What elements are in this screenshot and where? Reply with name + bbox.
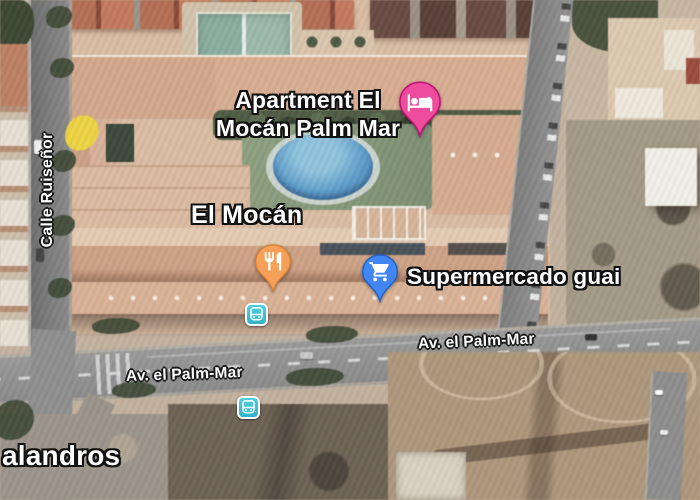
poi-label-supermercado[interactable]: Supermercado guai: [407, 264, 620, 290]
swimming-pool: [273, 133, 373, 200]
car: [660, 430, 668, 435]
poi-label-apartment[interactable]: Apartment El Mocán Palm Mar: [188, 86, 428, 142]
poi-label-apartment-line1: Apartment El: [188, 86, 428, 114]
trees-northwest-corner: [0, 0, 34, 48]
white-frame-structure: [352, 206, 426, 240]
street-label-calle-ruisenor: Calle Ruiseñor: [39, 133, 57, 248]
buildings-west-edge: [0, 106, 28, 346]
poi-label-el-mocan[interactable]: El Mocán: [191, 201, 302, 230]
place-label-partial[interactable]: alandros: [2, 440, 120, 472]
car: [585, 334, 597, 340]
restaurant-pin[interactable]: [253, 243, 293, 293]
building-white-east: [645, 148, 697, 206]
dirt-lot-south: [168, 404, 398, 500]
satellite-imagery: [0, 0, 700, 500]
buildings-west-edge-roofs: [0, 44, 28, 108]
car: [655, 390, 663, 395]
bus-stop-icon-1[interactable]: [245, 303, 268, 326]
building-white-roof: [615, 88, 663, 118]
bus-icon: [247, 305, 266, 324]
car: [36, 248, 44, 261]
bus-icon: [239, 398, 258, 417]
white-structure-south: [396, 452, 466, 500]
roof-vents-row-2: [96, 292, 526, 304]
solar-panel: [106, 124, 134, 162]
car: [300, 352, 313, 359]
building-roof-dark-top-right: [370, 0, 548, 38]
poi-label-apartment-line2: Mocán Palm Mar: [188, 114, 428, 142]
pin-shape: [363, 255, 398, 301]
bus-stop-icon-2[interactable]: [237, 396, 260, 419]
road-southeast: [645, 371, 688, 500]
road-south-continuation: [28, 329, 77, 419]
pin-shape: [256, 245, 291, 291]
map-canvas[interactable]: Apartment El Mocán Palm Mar El Mocán Sup…: [0, 0, 700, 500]
building-red-roof: [686, 58, 700, 84]
supermarket-pin[interactable]: [360, 253, 400, 303]
